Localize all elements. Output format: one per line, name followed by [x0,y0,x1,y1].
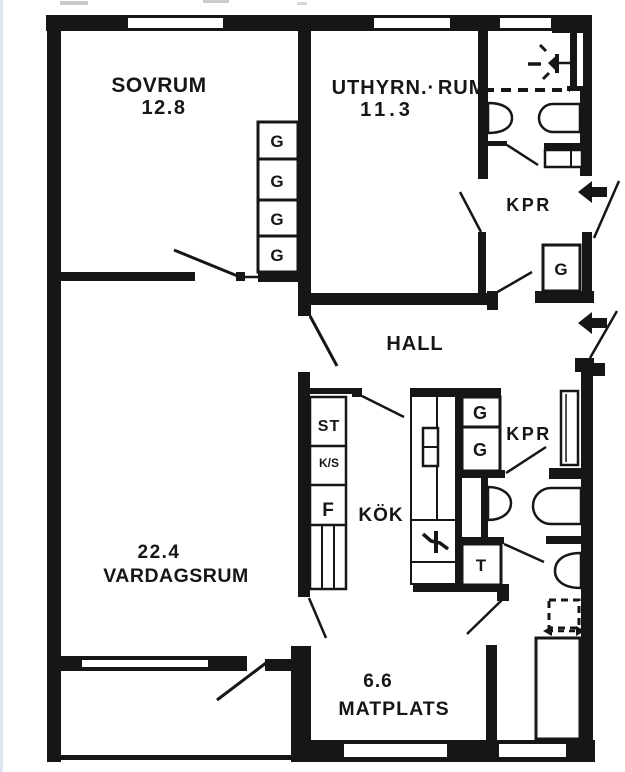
svg-text:G: G [473,440,487,460]
svg-text:6.6: 6.6 [363,671,392,692]
svg-text:UTHYRN.· RUM: UTHYRN.· RUM [332,77,487,99]
svg-text:G: G [473,403,487,423]
svg-text:F: F [322,500,334,521]
svg-text:SOVRUM: SOVRUM [111,74,206,97]
svg-text:11.3: 11.3 [360,99,414,121]
svg-text:G: G [270,246,283,265]
svg-text:HALL: HALL [386,333,443,355]
svg-text:MATPLATS: MATPLATS [338,698,449,720]
svg-text:ST: ST [318,418,340,435]
svg-text:G: G [270,132,283,151]
svg-text:G: G [270,172,283,191]
svg-text:12.8: 12.8 [142,97,187,119]
svg-text:KPR: KPR [506,195,552,215]
svg-text:22.4: 22.4 [138,542,181,563]
svg-text:G: G [270,210,283,229]
svg-text:G: G [554,260,567,279]
svg-text:VARDAGSRUM: VARDAGSRUM [103,565,248,587]
svg-text:KPR: KPR [506,424,552,444]
svg-text:KÖK: KÖK [358,505,403,526]
svg-text:T: T [476,556,487,575]
svg-text:K/S: K/S [319,456,339,470]
